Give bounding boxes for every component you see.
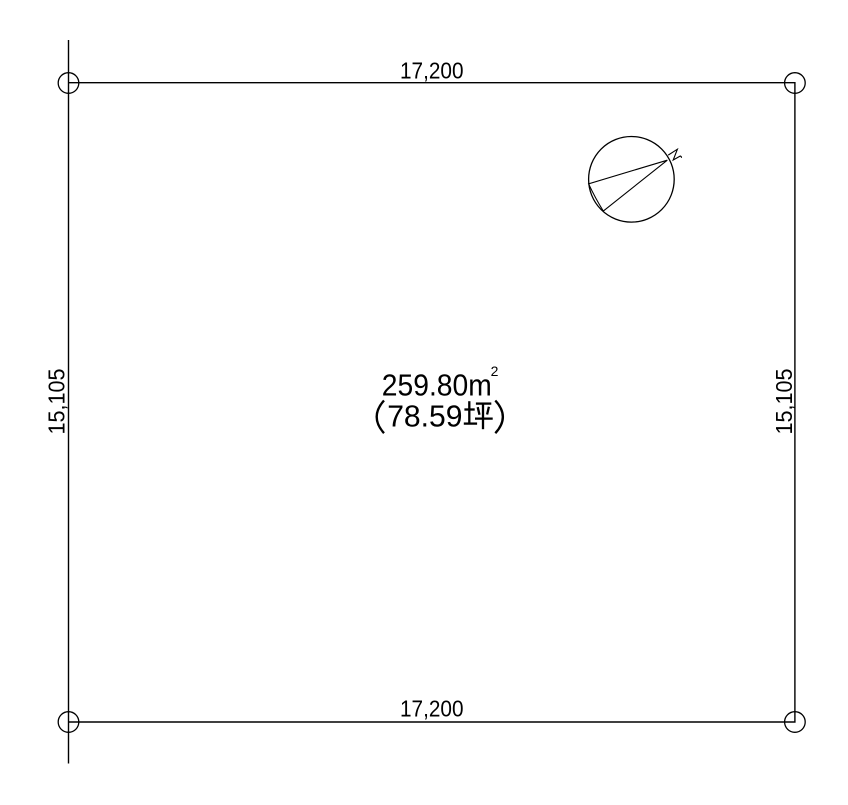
svg-text:78.59: 78.59	[387, 399, 462, 434]
svg-text:15,105: 15,105	[771, 369, 797, 435]
svg-text:2: 2	[491, 363, 499, 379]
svg-text:17,200: 17,200	[400, 58, 464, 84]
svg-text:259.80m: 259.80m	[382, 367, 492, 402]
svg-text:17,200: 17,200	[400, 696, 464, 722]
svg-text:15,105: 15,105	[43, 369, 69, 435]
